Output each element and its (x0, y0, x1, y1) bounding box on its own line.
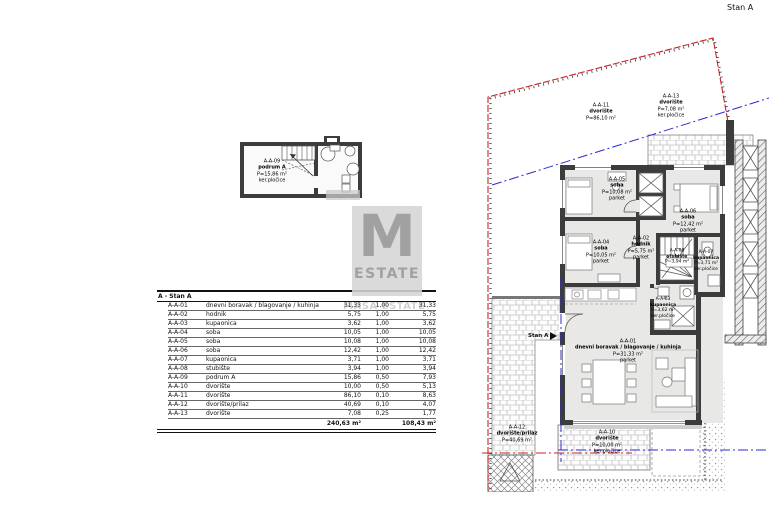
watermark-faint-text: MASA ESTATE (343, 301, 425, 312)
table-row: A-A-10dvorište10,000,505,13 (157, 383, 436, 392)
room-label-aa04: A-A-04sobaP=10,05 m²parket (586, 240, 616, 265)
room-label-aa02: A-A-02hodnikP=5,75 m²parket (628, 236, 655, 261)
room-label-aa12: A-A-12dvorište/prilazP=40,69 m² (497, 425, 538, 444)
table-row: A-A-12dvorište/prilaz40,690,104,07 (157, 401, 436, 410)
site-plan (480, 30, 769, 492)
table-row: A-A-06soba12,421,0012,42 (157, 347, 436, 356)
basement-shade (326, 190, 360, 200)
room-label-aa06: A-A-06sobaP=12,42 m²parket (673, 209, 703, 234)
room-label-aa01: A-A-01dnevni boravak / blagovanje / kuhi… (575, 339, 681, 364)
room-label-aa09: A-A-09 podrum A P=15,86 m² ker.pločice (257, 159, 287, 184)
room-label-aa03: A-A-03kupaonicaP=3,62 m²ker.pločice (650, 297, 676, 320)
drawing-sheet: Stan A A (0, 0, 769, 522)
neighbor-structure (725, 140, 766, 345)
table-row: A-A-03kupaonica3,621,003,62 (157, 320, 436, 329)
room-label-aa05: A-A-05sobaP=10,08 m²parket (602, 177, 632, 202)
room-label-aa10: A-A-10dvorišteP=10,00 m²ker.pločice (592, 430, 622, 455)
watermark-logo: M ESTATE (352, 206, 422, 296)
watermark-letter: M (358, 206, 416, 266)
entrance-arrow-icon (550, 332, 557, 340)
watermark-brand: ESTATE (354, 266, 420, 282)
table-row: A-A-04soba10,051,0010,05 (157, 329, 436, 338)
table-row: A-A-13dvorište7,080,251,77 (157, 410, 436, 419)
table-row: A-A-09podrum A15,860,507,93 (157, 374, 436, 383)
table-total-row: 240,63 m²108,43 m² (157, 419, 436, 430)
table-row: A-A-08stubište3,941,003,94 (157, 365, 436, 374)
entrance-text: Stan A (528, 333, 548, 339)
entrance-label: Stan A (528, 332, 557, 340)
table-row: A-A-05soba10,081,0010,08 (157, 338, 436, 347)
table-row: A-A-07kupaonica3,711,003,71 (157, 356, 436, 365)
room-label-aa13: A-A-13dvorišteP=7,08 m²ker.pločice (658, 94, 685, 119)
room-label-aa07: A-A-07kupaonicaP=3,71 m²ker.pločice (693, 250, 719, 273)
sheet-title: Stan A (727, 3, 753, 12)
building-layer (559, 120, 734, 429)
room-label-aa11: A-A-11dvorišteP=86,10 m² (586, 103, 616, 122)
table-row: A-A-11dvorište86,100,108,63 (157, 392, 436, 401)
room-label-aa08: A-A-08stubišteP=3,94 m² (665, 249, 689, 266)
